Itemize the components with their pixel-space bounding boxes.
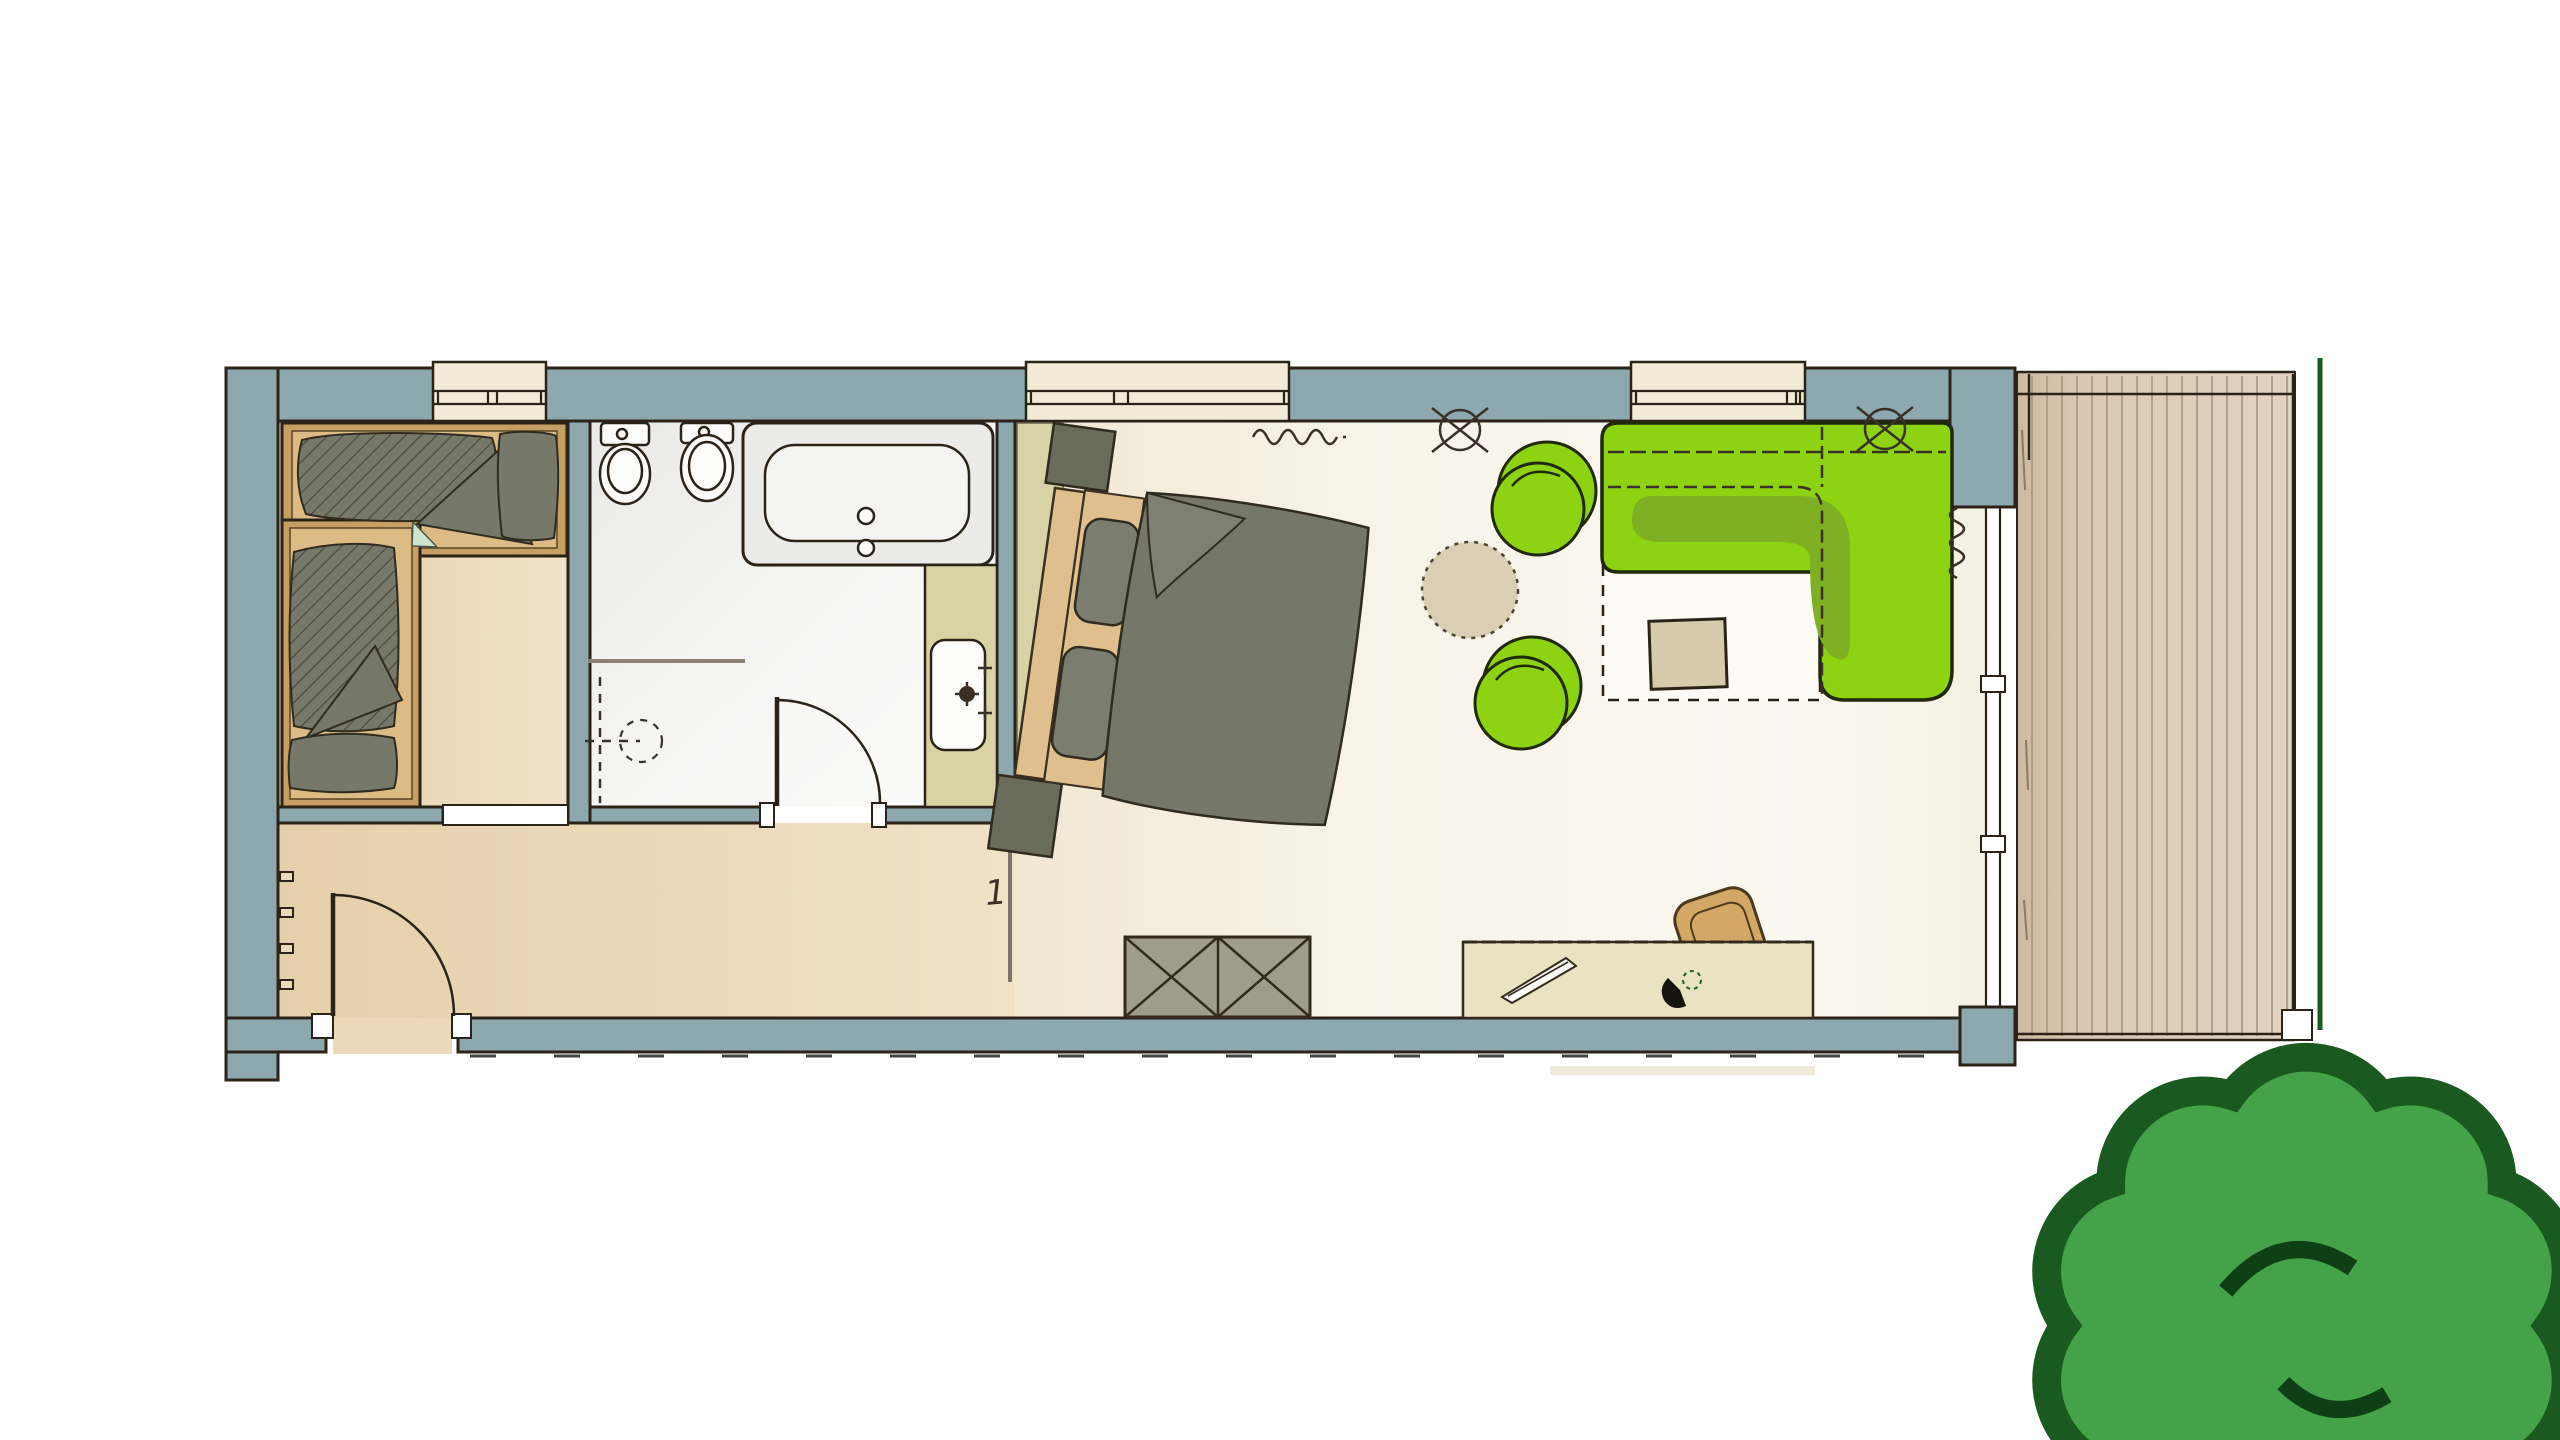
bathtub — [743, 423, 993, 565]
wall-closet-niche — [278, 807, 443, 823]
duvet — [1098, 489, 1374, 834]
window-3 — [1631, 362, 1805, 421]
wall-pier-bottom-right — [1960, 1007, 2015, 1065]
round-side-table — [1422, 542, 1518, 638]
window-2 — [1026, 362, 1289, 421]
wall-bath-east — [997, 421, 1015, 823]
floor-plan: 1 — [0, 0, 2560, 1440]
bed-block-bottom — [988, 775, 1062, 857]
hanging-clothes-side — [289, 544, 402, 792]
bidet — [681, 423, 733, 501]
wall-bath-south-left — [590, 807, 763, 823]
wall-bath-south-right — [880, 807, 997, 823]
dresser — [1125, 937, 1310, 1017]
pencil-mark: 1 — [983, 872, 1008, 914]
wall-left — [226, 368, 278, 1080]
bed-block-top — [1046, 423, 1116, 491]
window-1 — [433, 362, 546, 421]
wall-corner-top-right — [1950, 368, 2015, 507]
wall-bottom — [458, 1018, 1960, 1052]
door-threshold — [333, 1018, 452, 1054]
vanity-counter — [925, 565, 997, 807]
coffee-table — [1649, 619, 1727, 690]
opening-closet-hall — [443, 805, 568, 825]
planter-box — [2282, 1010, 2312, 1040]
balcony-deck — [2017, 372, 2295, 1040]
wall-bath-west — [568, 421, 590, 823]
toilet — [600, 423, 650, 504]
hall-floor — [278, 823, 1015, 1018]
wall-shadow-strip — [1550, 1066, 1815, 1075]
